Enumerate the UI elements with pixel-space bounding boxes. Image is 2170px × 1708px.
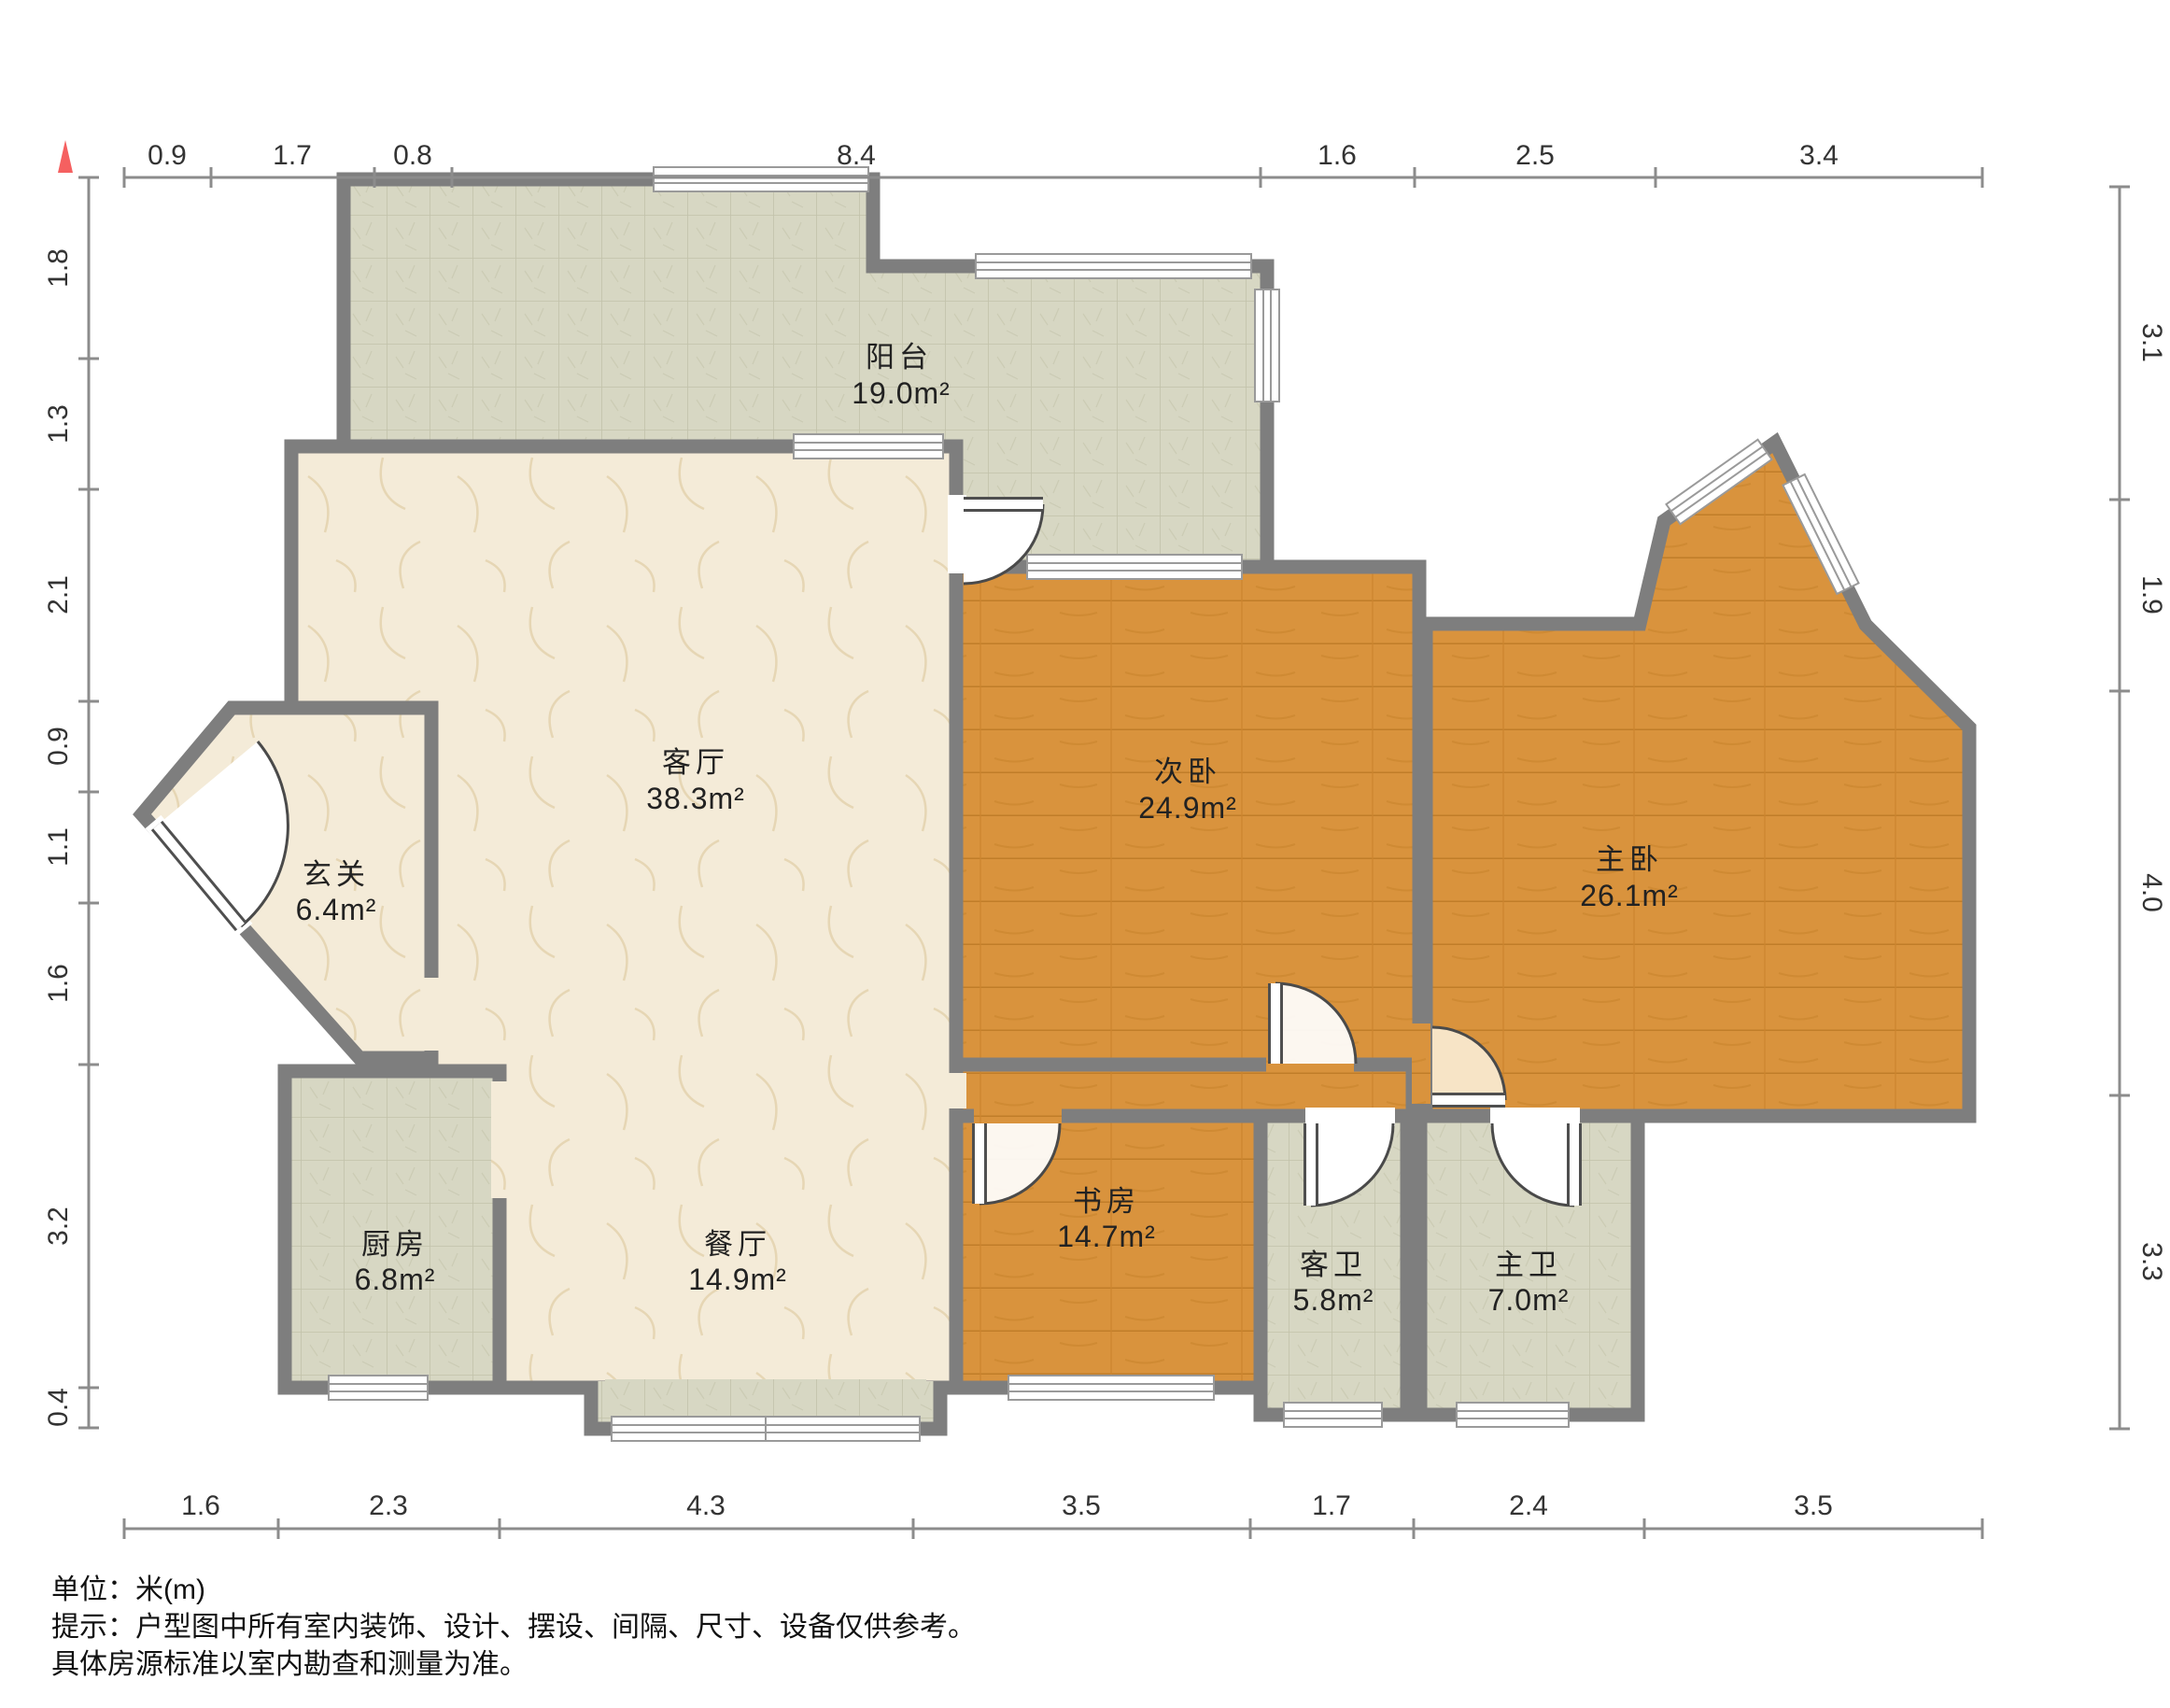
opening-master-door (1412, 1023, 1430, 1104)
bay-window (612, 1417, 920, 1441)
living-top-window (794, 434, 943, 459)
dim-value: 2.1 (43, 575, 74, 614)
dim-value: 3.5 (1062, 1490, 1101, 1521)
dim-value: 1.6 (181, 1490, 220, 1521)
kitchen-label: 厨房 (361, 1228, 429, 1261)
dim-left: 1.8 1.3 2.1 0.9 1.1 1.6 3.2 0.4 (43, 177, 99, 1428)
dim-right-labels: 3.1 1.9 4.0 3.3 (2136, 323, 2167, 1281)
dim-value: 1.9 (2136, 575, 2167, 614)
dim-value: 3.3 (2136, 1242, 2167, 1281)
dim-value: 0.4 (43, 1388, 74, 1427)
study-label: 书房 (1073, 1185, 1140, 1218)
dim-value: 2.4 (1509, 1490, 1548, 1521)
floorplan-canvas: 阳台 19.0m² 客厅 38.3m² 玄关 6.4m² 厨房 6.8m² 餐厅… (0, 0, 2170, 1708)
dim-right: 3.1 1.9 4.0 3.3 (2109, 187, 2167, 1429)
dining-label: 餐厅 (704, 1228, 771, 1261)
dim-value: 0.9 (43, 727, 74, 766)
dim-value: 1.6 (1317, 140, 1357, 171)
dining-area: 14.9m² (688, 1263, 787, 1296)
guest-bath-label: 客卫 (1300, 1249, 1367, 1281)
master-bath-window (1457, 1403, 1569, 1427)
dim-value: 1.6 (43, 964, 74, 1003)
dim-value: 4.0 (2136, 873, 2167, 912)
dim-value: 2.5 (1515, 140, 1555, 171)
room-master-bedroom (1426, 443, 1969, 1116)
dim-value: 1.7 (273, 140, 312, 171)
study-bottom-window (1008, 1376, 1214, 1400)
kitchen-area: 6.8m² (355, 1263, 436, 1296)
bedroom2-label: 次卧 (1154, 755, 1221, 788)
living-label: 客厅 (662, 746, 729, 779)
balcony-right-window (1255, 289, 1279, 402)
dim-value: 2.3 (369, 1490, 408, 1521)
entry-label: 玄关 (303, 858, 370, 891)
north-marker-icon (58, 140, 73, 173)
living-area: 38.3m² (646, 782, 745, 815)
balcony-label: 阳台 (866, 341, 933, 374)
footnotes: 单位：米(m) 提示：户型图中所有室内装饰、设计、摆设、间隔、尺寸、设备仅供参考… (51, 1574, 976, 1680)
dim-bottom: 1.6 2.3 4.3 3.5 1.7 2.4 3.5 (124, 1490, 1982, 1539)
opening-dining-bay (605, 1379, 926, 1398)
bedroom2-top-window (1027, 555, 1242, 579)
balcony-area: 19.0m² (852, 376, 951, 410)
entry-area: 6.4m² (296, 893, 377, 926)
bedroom2-area: 24.9m² (1138, 791, 1237, 825)
dim-value: 3.2 (43, 1207, 74, 1246)
floorplan-page: 阳台 19.0m² 客厅 38.3m² 玄关 6.4m² 厨房 6.8m² 餐厅… (0, 0, 2170, 1708)
dim-value: 8.4 (837, 140, 876, 171)
master-area: 26.1m² (1580, 879, 1679, 912)
dim-value: 3.5 (1794, 1490, 1833, 1521)
unit-note: 单位：米(m) (51, 1574, 205, 1605)
disclaimer-line2: 具体房源标准以室内勘查和测量为准。 (51, 1649, 528, 1680)
dim-value: 0.9 (148, 140, 187, 171)
disclaimer-line1: 提示：户型图中所有室内装饰、设计、摆设、间隔、尺寸、设备仅供参考。 (51, 1612, 976, 1643)
dim-value: 0.8 (393, 140, 432, 171)
opening-dining-corridor (948, 1073, 966, 1108)
dim-bottom-labels: 1.6 2.3 4.3 3.5 1.7 2.4 3.5 (181, 1490, 1833, 1521)
dim-value: 3.4 (1799, 140, 1839, 171)
dim-value: 4.3 (686, 1490, 726, 1521)
opening-entry-living (423, 978, 442, 1051)
guest-bath-window (1284, 1403, 1382, 1427)
guest-bath-area: 5.8m² (1293, 1283, 1374, 1317)
kitchen-bottom-window (329, 1376, 428, 1400)
dim-left-labels: 1.8 1.3 2.1 0.9 1.1 1.6 3.2 0.4 (43, 248, 74, 1427)
dim-top-labels: 0.9 1.7 0.8 8.4 1.6 2.5 3.4 (148, 140, 1839, 171)
opening-kitchen-dining (491, 1081, 510, 1198)
dim-value: 1.3 (43, 404, 74, 444)
balcony-step-window (976, 254, 1251, 278)
dim-value: 1.8 (43, 248, 74, 288)
master-label: 主卧 (1596, 843, 1663, 876)
room-entry (142, 708, 431, 1058)
dim-value: 1.7 (1312, 1490, 1351, 1521)
master-bath-area: 7.0m² (1488, 1283, 1570, 1317)
dim-value: 3.1 (2136, 323, 2167, 362)
master-bath-label: 主卫 (1495, 1249, 1562, 1281)
study-area: 14.7m² (1057, 1220, 1156, 1253)
dim-value: 1.1 (43, 827, 74, 867)
